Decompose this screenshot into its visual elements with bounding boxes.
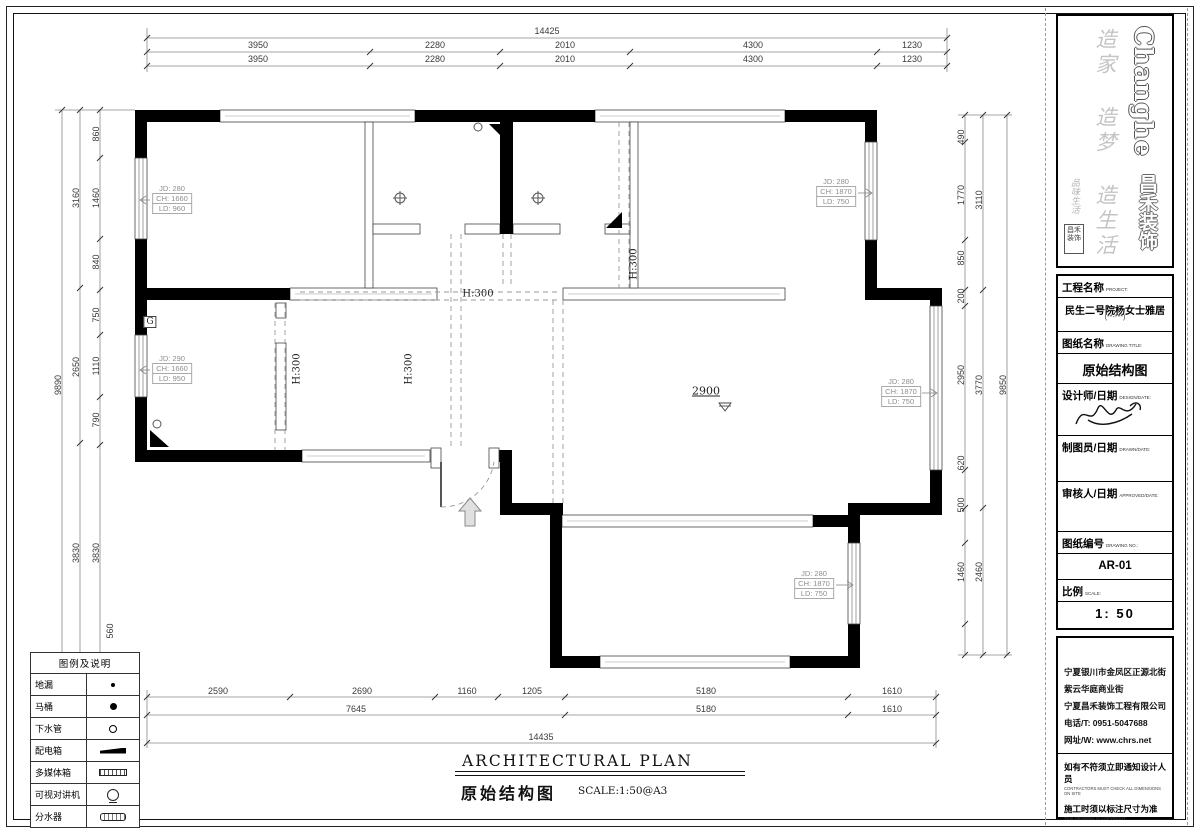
window-spec-line: JD: 290 [152, 354, 192, 364]
legend-table: 图例及说明 地漏马桶下水管配电箱多媒体箱可视对讲机分水器 [30, 652, 140, 828]
dim-label: 2460 [974, 562, 984, 582]
note-1-cn: 如有不符须立即通知设计人员 [1064, 761, 1166, 785]
dim-label: 1230 [902, 54, 922, 64]
notes-divider [1058, 753, 1172, 754]
dim-label: 1160 [457, 686, 476, 696]
dim-label: 2650 [71, 357, 81, 377]
window-spec-line: LD: 750 [794, 589, 834, 599]
entry-arrow-icon [459, 498, 481, 526]
dim-label: 7645 [346, 704, 366, 714]
windows [135, 142, 942, 624]
window-spec-line: LD: 960 [152, 204, 192, 214]
dim-label: 860 [91, 126, 101, 141]
dim-label: 500 [956, 497, 966, 512]
dim-label: 1230 [902, 40, 922, 50]
media-symbol-icon [99, 769, 127, 776]
window-spec-line: LD: 750 [881, 397, 921, 407]
dim-label: 2280 [425, 54, 445, 64]
dim-label: 1770 [956, 185, 966, 205]
scale-label-en: SCALE: [1085, 591, 1101, 596]
legend-row: 多媒体箱 [31, 762, 139, 784]
window-spec-tag: JD: 280CH: 1870LD: 750 [794, 569, 834, 599]
thin-walls [220, 110, 813, 668]
power-symbol-icon [100, 748, 126, 754]
dim-label: 3950 [248, 40, 268, 50]
power-symbols [150, 124, 622, 447]
note-2-cn: 施工时须以标注尺寸为准 [1064, 803, 1166, 815]
legend-item-label: 马桶 [31, 696, 87, 717]
dim-label: 620 [956, 455, 966, 470]
fixture-symbols [153, 123, 545, 428]
drawing-number-value: AR-01 [1062, 556, 1168, 576]
dim-label: 4300 [743, 40, 763, 50]
project-label-en: PROJECT: [1106, 287, 1128, 292]
note-2-en: THIS DRAWING IS COPYRIGHT [1064, 816, 1166, 821]
dim-label: 1460 [956, 562, 966, 582]
dim-label: 200 [956, 288, 966, 303]
dim-label: 1205 [522, 686, 542, 696]
number-value-row: AR-01 [1058, 554, 1172, 580]
legend-item-label: 配电箱 [31, 740, 87, 761]
brand-calligraphy: 品味生活 [1068, 178, 1081, 214]
dim-label: 3830 [71, 543, 81, 563]
dim-label: 4300 [743, 54, 763, 64]
dim-label: 3160 [71, 188, 81, 208]
title-block: 工程名称PROJECT: 民生二号院杨女士雅居 (**-***) 图纸名称DRA… [1056, 274, 1174, 630]
dim-label: 560 [105, 623, 115, 638]
window-spec-line: CH: 1660 [152, 364, 192, 374]
company-address-2: 紫云华庭商业街 [1064, 683, 1166, 695]
window-spec-tag: JD: 290CH: 1660LD: 950 [152, 354, 192, 384]
scale-value-row: 1: 50 [1058, 602, 1172, 628]
dim-label: 3830 [91, 543, 101, 563]
window-spec-line: LD: 750 [816, 197, 856, 207]
ceiling-height-label: 2900 [692, 385, 720, 398]
brand-seal: 昌禾装饰 [1064, 224, 1084, 254]
window-spec-line: CH: 1660 [152, 194, 192, 204]
legend-row: 配电箱 [31, 740, 139, 762]
window-spec-line: JD: 280 [794, 569, 834, 579]
plan-label: H:300 [404, 353, 415, 384]
window-spec-line: JD: 280 [881, 377, 921, 387]
designer-row: 设计师/日期DESIGN/DATE: [1058, 384, 1172, 436]
brand-logo-cn: 昌禾装饰 [1133, 174, 1160, 250]
drawing-sheet: 1442539502280201043001230395022802010430… [0, 0, 1200, 833]
dim-label: 3950 [248, 54, 268, 64]
window-spec-line: CH: 1870 [794, 579, 834, 589]
dim-label: 790 [91, 412, 101, 427]
plan-label: G [143, 316, 156, 328]
dim-label: 490 [956, 129, 966, 144]
legend-row: 可视对讲机 [31, 784, 139, 806]
drawing-number-label: 图纸编号 [1062, 538, 1104, 550]
company-website: 网址/W: www.chrs.net [1064, 734, 1166, 746]
legend-item-label: 地漏 [31, 674, 87, 695]
dim-label: 5180 [696, 686, 716, 696]
dot1-symbol-icon [111, 683, 115, 687]
designer-signature [1070, 394, 1160, 432]
dim-label: 9850 [998, 375, 1008, 395]
scale-label: 比例 [1062, 586, 1083, 598]
legend-title: 图例及说明 [31, 653, 139, 674]
window-spec-line: CH: 1870 [816, 187, 856, 197]
legend-row: 地漏 [31, 674, 139, 696]
drawing-title-label-en: DRAWING TITLE: [1106, 343, 1142, 348]
dim-label: 2590 [208, 686, 228, 696]
note-1-en: CONTRACTORS MUST CHECK ALL DIMENSIONS ON… [1064, 786, 1166, 796]
floor-plan [0, 0, 1200, 833]
legend-item-label: 下水管 [31, 718, 87, 739]
window-spec-line: CH: 1870 [881, 387, 921, 397]
entry-door [431, 448, 499, 507]
dim-label: 1610 [882, 704, 902, 714]
drafter-label-en: DRAWN/DATE: [1119, 447, 1150, 452]
dim-label: 14425 [534, 26, 559, 36]
logo-box: Changhe 昌禾装饰 造家 造梦 造生活 品味生活 昌禾装饰 [1056, 14, 1174, 268]
intercom-symbol-icon [107, 789, 119, 801]
approver-row: 审核人/日期APPROVED/DATE: [1058, 482, 1172, 532]
dim-label: 3770 [974, 375, 984, 395]
plan-label: H:300 [292, 353, 303, 384]
drawing-value-row: 原始结构图 [1058, 354, 1172, 384]
dim-label: 3110 [974, 190, 984, 209]
dim-label: 850 [956, 250, 966, 265]
plan-title-cn: 原始结构图 [461, 780, 556, 804]
window-spec-line: JD: 280 [152, 184, 192, 194]
dim-label: 2950 [956, 365, 966, 385]
drafter-row: 制图员/日期DRAWN/DATE: [1058, 436, 1172, 482]
company-box: 宁夏银川市金凤区正源北街 紫云华庭商业街 宁夏昌禾装饰工程有限公司 电话/T: … [1056, 636, 1174, 819]
legend-item-label: 分水器 [31, 806, 87, 827]
dim-label: 2280 [425, 40, 445, 50]
dim-label: 1110 [91, 357, 101, 376]
leader-arrows [140, 189, 937, 589]
dim-label: 5180 [696, 704, 716, 714]
dim-label: 1610 [882, 686, 902, 696]
dim-label: 2010 [555, 54, 575, 64]
scale-label-row: 比例SCALE: [1058, 580, 1172, 602]
dim-label: 1460 [91, 188, 101, 208]
legend-item-label: 可视对讲机 [31, 784, 87, 805]
scale-value: 1: 50 [1058, 602, 1172, 625]
legend-row: 分水器 [31, 806, 139, 827]
company-phone: 电话/T: 0951-5047688 [1064, 717, 1166, 729]
plan-title-en: ARCHITECTURAL PLAN [462, 752, 693, 770]
level-mark [719, 403, 731, 411]
plan-label: H:300 [462, 289, 493, 300]
approver-label-en: APPROVED/DATE: [1119, 493, 1158, 498]
manifold-symbol-icon [100, 813, 126, 821]
dashed-lines [275, 122, 629, 503]
project-label: 工程名称 [1062, 282, 1104, 294]
dim-label: 2010 [555, 40, 575, 50]
company-name: 宁夏昌禾装饰工程有限公司 [1064, 700, 1166, 712]
plan-title-underline [455, 771, 745, 776]
ring-symbol-icon [109, 725, 117, 733]
dim-label: 2690 [352, 686, 372, 696]
company-address-1: 宁夏银川市金凤区正源北街 [1064, 666, 1166, 678]
number-label-row: 图纸编号DRAWING NO.: [1058, 532, 1172, 554]
plan-title-scale: SCALE:1:50@A3 [578, 785, 667, 797]
dim-label: 9890 [53, 375, 63, 395]
window-spec-line: JD: 280 [816, 177, 856, 187]
project-value-row: 民生二号院杨女士雅居 (**-***) [1058, 298, 1172, 332]
approver-label: 审核人/日期 [1062, 488, 1117, 500]
window-spec-tag: JD: 280CH: 1660LD: 960 [152, 184, 192, 214]
drawing-number-label-en: DRAWING NO.: [1106, 543, 1138, 548]
window-spec-tag: JD: 280CH: 1870LD: 750 [816, 177, 856, 207]
window-spec-line: LD: 950 [152, 374, 192, 384]
legend-item-label: 多媒体箱 [31, 762, 87, 783]
drawing-title-label: 图纸名称 [1062, 338, 1104, 350]
dot2-symbol-icon [110, 703, 117, 710]
legend-row: 下水管 [31, 718, 139, 740]
dim-label: 750 [91, 307, 101, 322]
drafter-label: 制图员/日期 [1062, 442, 1117, 454]
drawing-title-value: 原始结构图 [1062, 356, 1168, 383]
brand-logo-en: Changhe [1129, 26, 1158, 176]
dim-label: 840 [91, 254, 101, 269]
plan-label: H:300 [629, 248, 640, 279]
brand-slogan: 造家 造梦 造生活 [1090, 28, 1120, 259]
project-label-row: 工程名称PROJECT: [1058, 276, 1172, 298]
dim-label: 14435 [528, 732, 553, 742]
window-spec-tag: JD: 280CH: 1870LD: 750 [881, 377, 921, 407]
legend-row: 马桶 [31, 696, 139, 718]
drawing-label-row: 图纸名称DRAWING TITLE: [1058, 332, 1172, 354]
